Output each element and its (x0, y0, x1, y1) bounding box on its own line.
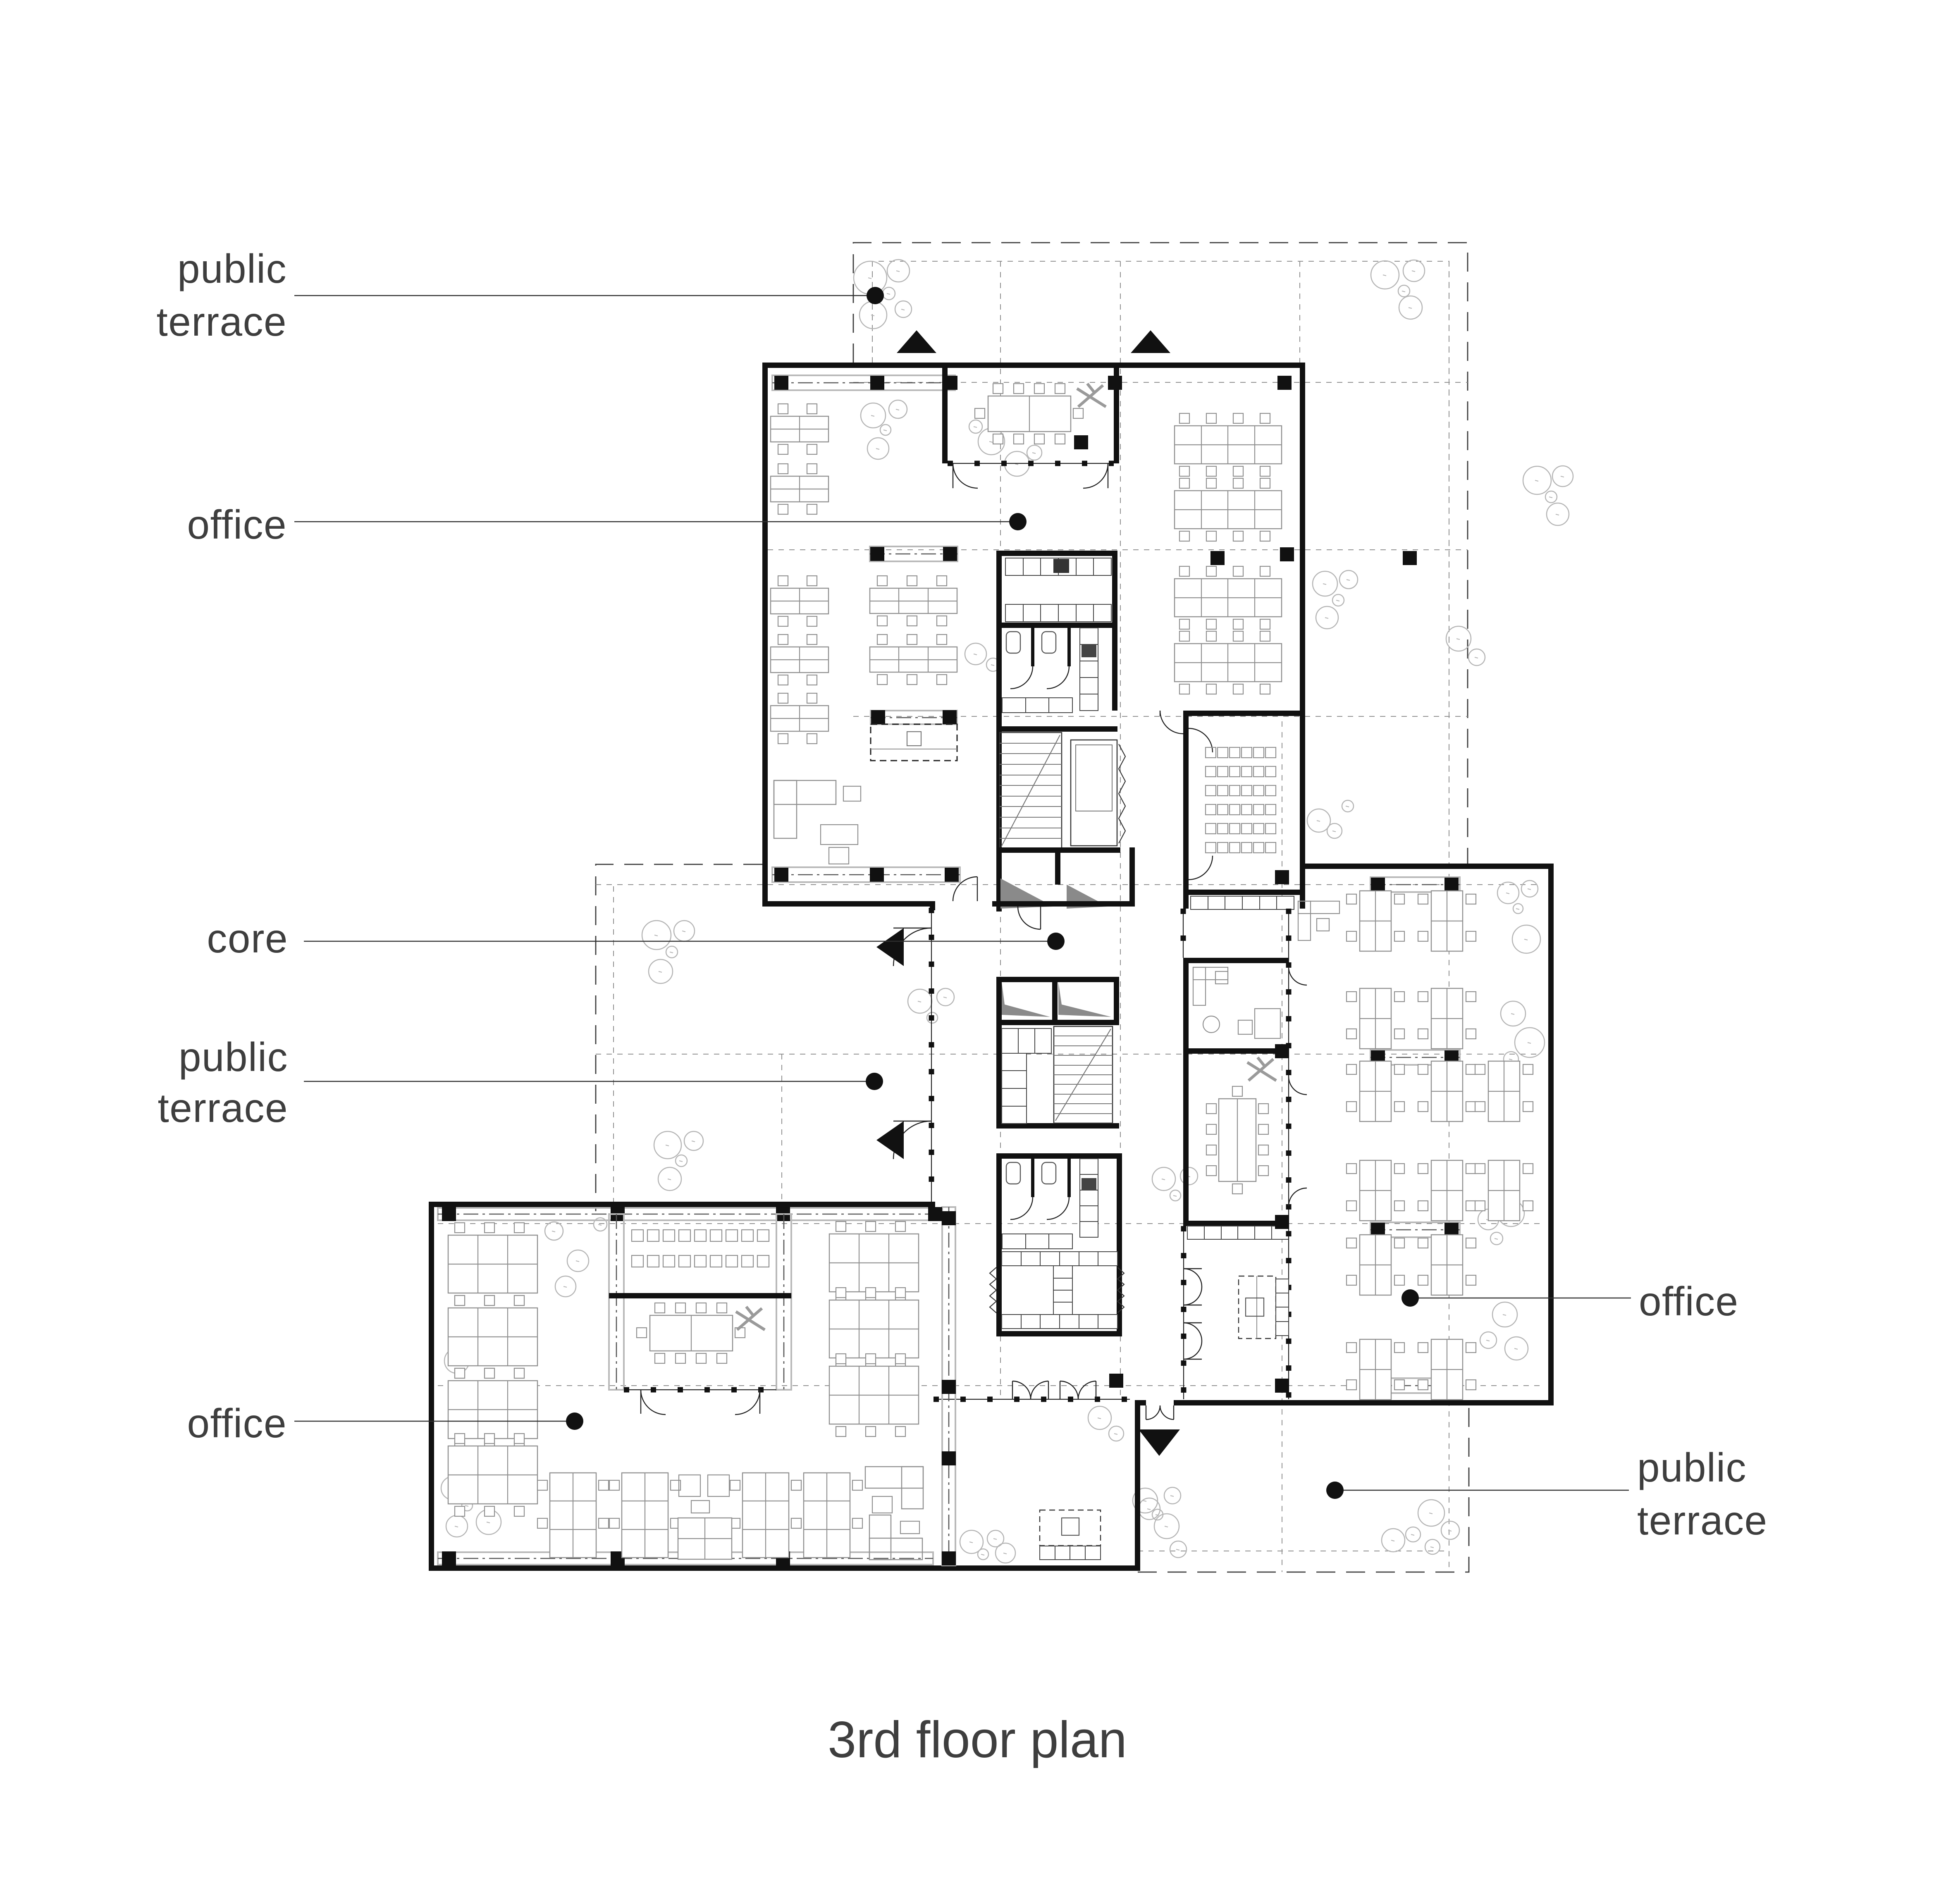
svg-text:core: core (207, 916, 288, 961)
svg-text:public: public (177, 246, 287, 291)
svg-text:public: public (1637, 1445, 1747, 1490)
svg-text:public: public (179, 1034, 288, 1080)
svg-text:terrace: terrace (1637, 1498, 1768, 1543)
svg-text:3rd floor plan: 3rd floor plan (828, 1711, 1127, 1768)
svg-text:terrace: terrace (156, 299, 287, 344)
svg-text:office: office (1639, 1279, 1738, 1324)
svg-text:terrace: terrace (158, 1085, 288, 1131)
svg-text:office: office (187, 1401, 287, 1446)
svg-text:office: office (187, 502, 287, 547)
